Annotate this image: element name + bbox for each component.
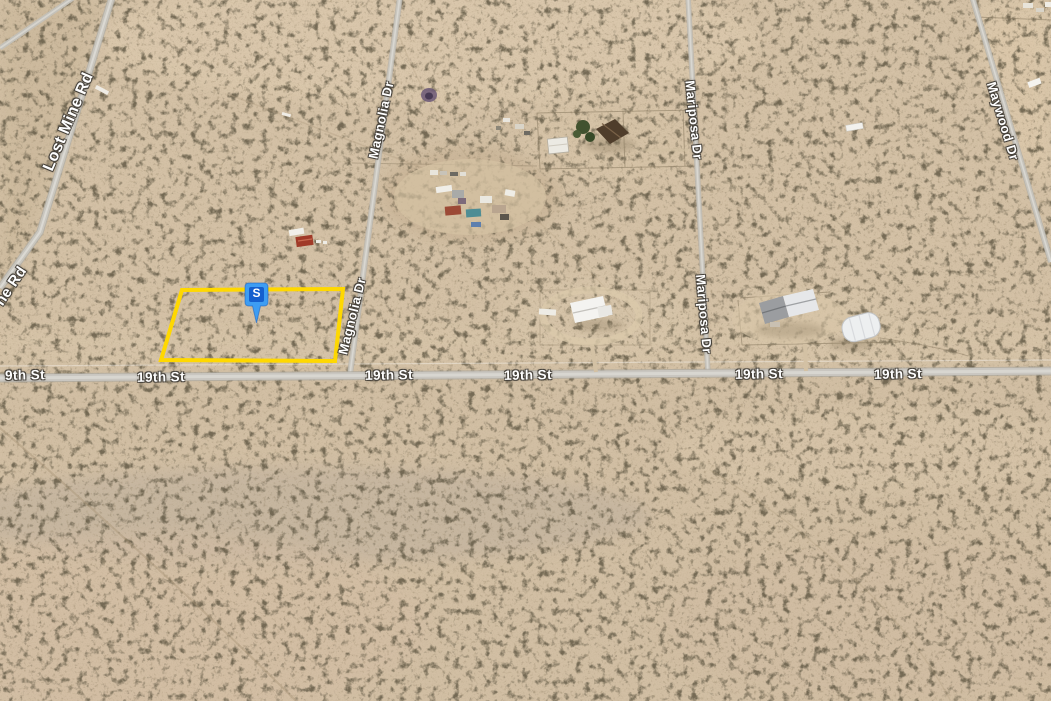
driveway-stub-2 [805, 344, 806, 371]
satellite-imagery [0, 0, 1051, 701]
marker-label: S [244, 286, 269, 301]
desert-speckle [0, 0, 1051, 701]
purple-bush [421, 88, 437, 102]
white-shed [547, 137, 568, 154]
junk-cluster [394, 159, 546, 235]
property-marker-pin[interactable]: S [244, 282, 269, 325]
map-canvas[interactable]: Lost Mine Rd ne Rd Magnolia Dr Magnolia … [0, 0, 1051, 701]
